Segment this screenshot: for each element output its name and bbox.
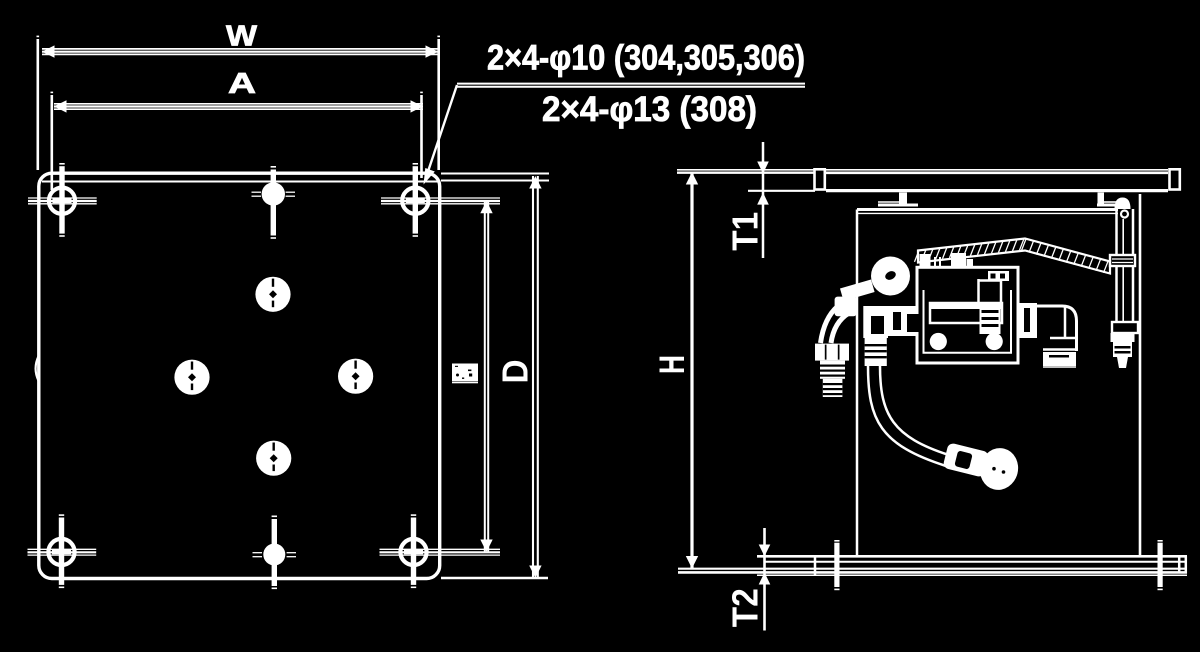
svg-text:D: D	[495, 360, 536, 384]
svg-text:T1: T1	[724, 212, 765, 251]
svg-text:T2: T2	[724, 588, 765, 627]
svg-text:2×4-φ13 (308): 2×4-φ13 (308)	[542, 90, 757, 129]
svg-text:W: W	[226, 21, 258, 53]
svg-text:2×4-φ10 (304,305,306): 2×4-φ10 (304,305,306)	[487, 39, 805, 78]
svg-text:A: A	[228, 68, 256, 100]
svg-text:H: H	[653, 355, 692, 374]
